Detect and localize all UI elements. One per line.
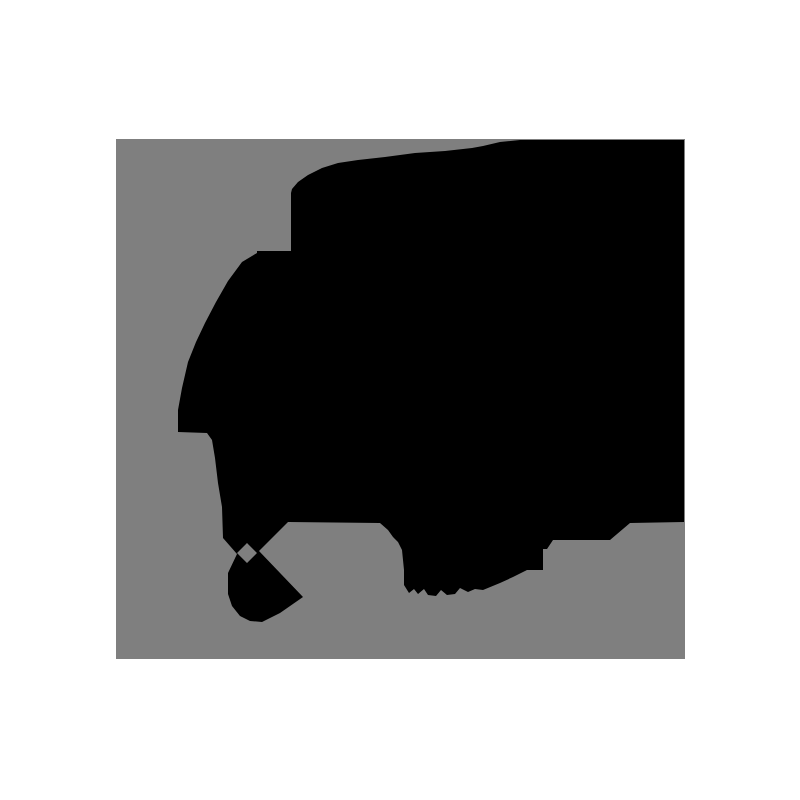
page-background: [0, 0, 800, 800]
mask-background: [116, 139, 685, 659]
mask-silhouette-path: [178, 140, 684, 622]
silhouette-svg: [116, 139, 685, 659]
